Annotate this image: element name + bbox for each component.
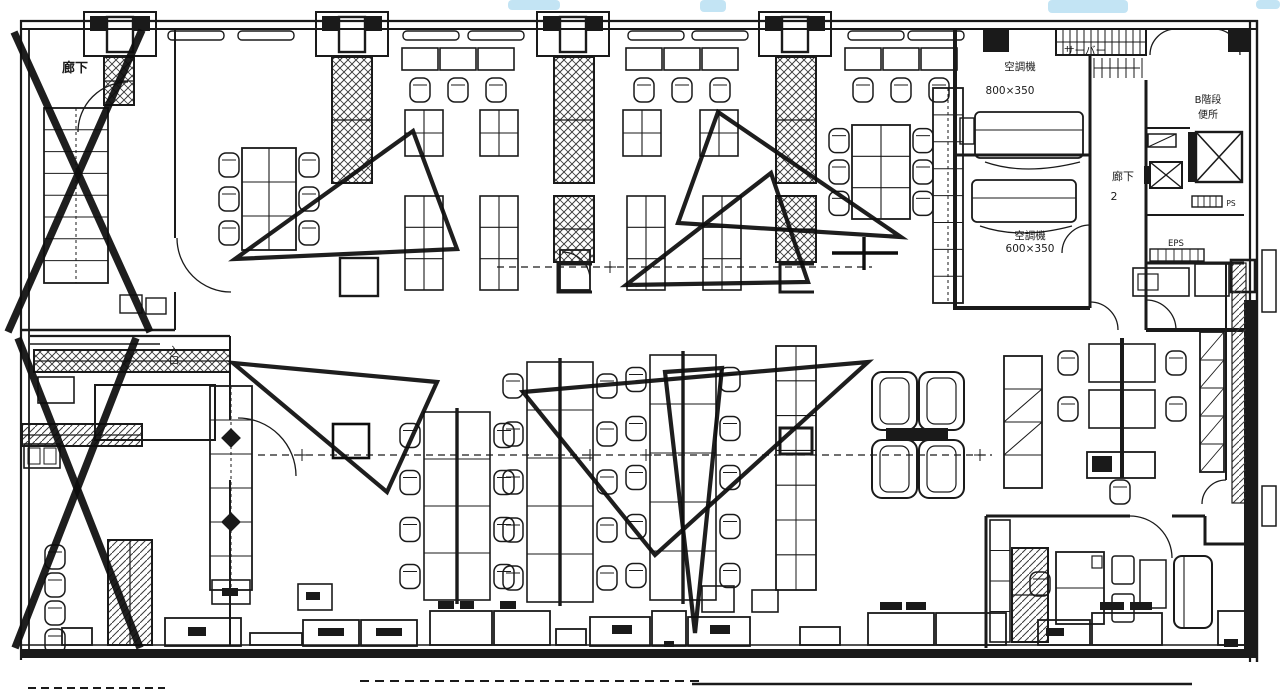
storage-cabinet-hatched [22,424,142,446]
label-chip [664,641,674,647]
elevator-shaft [1188,132,1242,182]
label-chip [318,628,344,636]
label-chip [880,602,902,610]
chair [1058,397,1078,421]
chair [597,422,617,446]
label-toilet: 便所 [1198,108,1218,121]
label-chip [500,601,516,609]
cabinet [652,611,686,646]
desk-cluster-1 [400,408,514,604]
small-cabinet [752,590,778,612]
chair [672,78,692,102]
desk-pair [480,110,518,156]
tall-cabinet-hatched [554,57,594,183]
highlighter-smudge [508,0,560,10]
cabinet [62,628,92,645]
eps-louver [1150,249,1204,261]
label-chip [1224,639,1238,647]
window-pillar [759,12,831,56]
cabinet [936,613,1006,645]
highlighter-smudge [700,0,726,12]
cabinet [868,613,934,645]
label-chip [1046,628,1064,636]
chair [597,566,617,590]
chair [1110,480,1130,504]
chair [913,129,933,153]
door-swing [1150,29,1176,55]
chair [400,471,420,495]
window-pillar [84,12,156,56]
pipe-shaft-louver [1192,196,1222,207]
corridor-cabinets [1200,332,1224,472]
desk-block [480,196,518,290]
plus-mark [832,237,898,270]
cabinet [800,627,840,645]
label-chip [612,625,632,634]
storage-cabinet-hatched [1012,548,1048,642]
shaft-louver [1148,134,1176,147]
side-table [1112,556,1134,584]
label-chip [1130,602,1152,610]
sofa [872,440,917,498]
desk-grid [852,125,910,219]
x-mark-lower-left [15,338,140,648]
exterior-fixture [1262,486,1276,526]
walls [20,20,1276,662]
door-swing [238,418,296,476]
door-swing [1202,480,1226,504]
long-cabinet [933,88,963,303]
desk-cluster-2 [503,358,617,606]
door-swing [1130,516,1172,558]
chair [1166,397,1186,421]
window-pillar [537,12,609,56]
chair [720,515,740,539]
chair [929,78,949,102]
window-sill-tick [168,31,224,40]
label-ps: PS [1226,199,1236,208]
label-corridor-top-left: 廊下 [62,60,88,76]
chair [626,466,646,490]
couch [1174,556,1212,628]
door-swing [1062,225,1090,253]
sofa [872,372,917,430]
chair [710,78,730,102]
hvac-unit [972,180,1076,233]
chair [634,78,654,102]
cabinet [1195,264,1229,296]
window-sill-tick [628,31,684,40]
chair [219,221,239,245]
shaft-box [1144,162,1182,188]
cabinet [1092,613,1162,645]
bottom-wall [20,649,1258,658]
chair [626,564,646,588]
label-entrance: 入口 [167,345,179,365]
cabinet-column [776,346,816,590]
lounge-table [886,428,948,441]
marker-diamond [221,512,241,532]
counter-desks [626,48,738,102]
chair [853,78,873,102]
meeting-table-right [829,125,933,219]
floor-plan: 廊下 サーバー 空調機 800×350 空調機 600×350 廊下 2 B階段… [0,0,1280,691]
floor-box [340,258,378,296]
highlighter-marks [508,0,1280,13]
window-pillar [316,12,388,56]
open-cabinet [780,264,814,292]
desk-pair [623,110,661,156]
cabinet [556,629,586,645]
label-hvac-upper: 空調機 [1004,60,1036,73]
chair [913,160,933,184]
cabinet [494,611,550,645]
cabinet [250,633,302,645]
chair [486,78,506,102]
desk-cluster-3 [626,351,740,604]
label-chip [376,628,402,636]
window-sill-tick [848,31,904,40]
window-sill-tick [692,31,748,40]
cabinet [1133,268,1189,296]
window-sill-tick [468,31,524,40]
highlighter-smudge [1048,0,1128,13]
counter-desks [402,48,514,102]
hvac-unit [960,112,1083,169]
chair [400,518,420,542]
label-chip [460,601,474,609]
label-hvac-lower-size: 600×350 [1006,243,1055,255]
chair [299,153,319,177]
chair [597,518,617,542]
chair [45,573,65,597]
sofa [919,440,964,498]
office-area-upper [219,48,963,303]
highlighter-smudge [1256,0,1280,9]
door-swing [1090,302,1118,330]
chair [45,601,65,625]
label-eps: EPS [1168,239,1184,249]
label-hvac-lower: 空調機 [1014,229,1046,242]
triangle-mark-4 [233,363,437,492]
marker-diamond [221,428,241,448]
chair [219,187,239,211]
door-swing [1146,300,1176,330]
chair [829,129,849,153]
chair [400,565,420,589]
chair [448,78,468,102]
meeting-room-lower-right [986,516,1244,648]
shelf-column [1004,356,1042,488]
exterior-fixture [1262,250,1276,312]
chair [1166,351,1186,375]
wall-hatch [1232,263,1246,503]
chair [720,417,740,441]
chair [299,221,319,245]
window-sill-tick [403,31,459,40]
chair [720,564,740,588]
chair [219,153,239,177]
label-chip [188,627,206,636]
label-chip [438,601,454,609]
label-corridor-2: 廊下 [1112,169,1134,183]
chair [503,374,523,398]
chair [626,417,646,441]
counter-desks [845,48,957,102]
label-chip [1100,602,1124,610]
table [1140,560,1166,608]
desk-block [405,196,443,290]
windows-and-pillars [84,12,964,56]
desk-block [627,196,665,290]
floor-plan-page: 廊下 サーバー 空調機 800×350 空調機 600×350 廊下 2 B階段… [0,0,1280,691]
cross-desk-cluster [1058,338,1186,504]
window-sill-tick [238,31,294,40]
label-server-room: サーバー [1064,45,1106,57]
small-cabinet [702,586,734,612]
chair [626,515,646,539]
label-corridor-2-number: 2 [1111,190,1118,203]
chair [891,78,911,102]
column-pillar [983,28,1009,52]
chair [410,78,430,102]
label-hvac-upper-size: 800×350 [986,85,1035,97]
chair [829,160,849,184]
wall-cabinet [990,520,1010,642]
room-labels: 廊下 サーバー 空調機 800×350 空調機 600×350 廊下 2 B階段… [62,45,1236,365]
chair [1058,351,1078,375]
chair [913,191,933,215]
door-swing [177,238,231,292]
label-chip [710,625,730,634]
label-chip [906,602,926,610]
sofa [919,372,964,430]
label-stairs-b: B階段 [1195,93,1222,106]
cabinet [430,611,492,645]
